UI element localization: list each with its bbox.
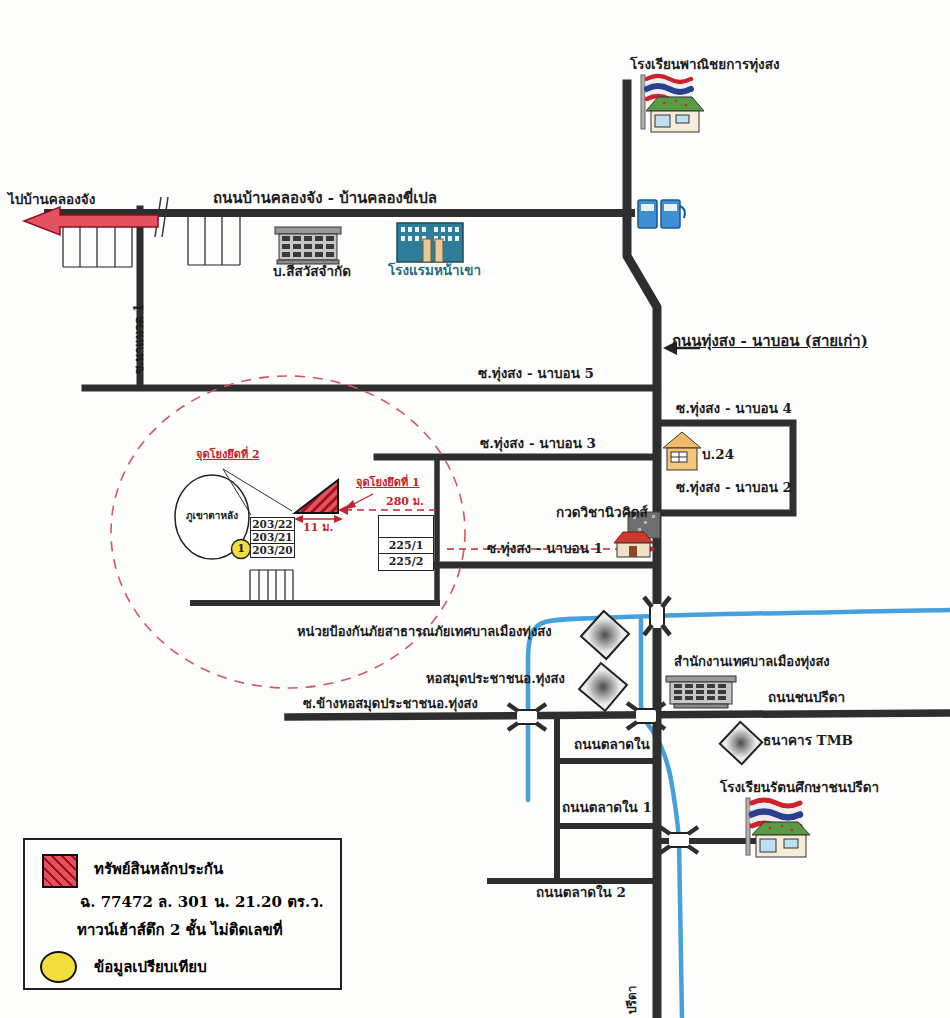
commercial-school-icon	[641, 75, 704, 132]
label-talat-nai-road: ถนนตลาดใน	[574, 737, 650, 752]
gas-station-icon	[638, 200, 685, 228]
label-fire-prevention-unit: หน่วยป้องกันภัยสาธารณภัยเทศบาลเมืองทุ่งส…	[297, 625, 552, 639]
label-municipality-office: สำนักงานเทศบาลเมืองทุ่งสง	[674, 655, 830, 669]
label-soi3: ซ.ทุ่งสง - นาบอน 3	[480, 436, 596, 451]
legend-comparison-label: ข้อมูลเปรียบเทียบ	[94, 955, 207, 979]
label-anchor-point-2: จุดโยงยึดที่ 2	[196, 449, 260, 461]
label-to-ban-khlong-chang: ไปบ้านคลองจัง	[8, 192, 95, 207]
label-distance-280: 280 ม.	[386, 496, 424, 508]
label-rattana-school: โรงเรียนรัตนศึกษาชนปรีดา	[720, 780, 879, 795]
label-soi5: ซ.ทุ่งสง - นาบอน 5	[478, 366, 594, 381]
label-na-khao-hotel: โรงแรมหน้าเขา	[388, 263, 481, 278]
label-soi1: ซ.ทุ่งสง - นาบอน 1	[487, 541, 603, 556]
label-soi-vertical: ซ.นาแนวด 1	[133, 304, 147, 374]
label-house-24: บ.24	[702, 447, 734, 462]
label-distance-11: 11 ม.	[303, 522, 333, 534]
parcel-cell-203-20: 203/20	[250, 543, 295, 558]
tmb-bank-diamond-icon	[720, 722, 762, 764]
legend-building-info: ทาวน์เฮ้าส์ตึก 2 ชั้น ไม่ติดเลขที่	[77, 918, 283, 942]
label-soi4: ซ.ทุ่งสง - นาบอน 4	[676, 401, 792, 416]
label-commercial-school: โรงเรียนพาณิชยการทุ่งสง	[630, 57, 780, 72]
label-newkids-tutor: กวดวิชานิวคิดส์	[556, 505, 648, 520]
municipality-building-icon	[666, 676, 736, 708]
label-old-road: ถนนทุ่งสง - นาบอน (สายเก่า)	[672, 333, 868, 350]
label-chon-preeda-road: ถนนชนปรีดา	[768, 690, 845, 705]
house-24-icon	[663, 432, 701, 470]
library-diamond-icon	[579, 663, 627, 711]
label-bottom-road-vertical: ปรีดา	[626, 985, 640, 1014]
label-tmb-bank: ธนาคาร TMB	[763, 733, 853, 748]
hand-drawn-location-map: 203/22 203/21 203/20 225/1 225/2 1 โรงเร…	[0, 0, 950, 1018]
road-library-chonpreeda	[288, 713, 950, 717]
label-soi2: ซ.ทุ่งสง - นาบอน 2	[676, 480, 792, 495]
collateral-property-triangle	[295, 480, 338, 513]
parcel-cell-225-2: 225/2	[378, 553, 434, 571]
label-talat-nai-2-road: ถนนตลาดใน 2	[536, 885, 626, 900]
collateral-hatch-swatch	[42, 854, 78, 888]
label-library-side-soi: ซ.ข้างหอสมุดประชาชนอ.ทุ่งสง	[303, 697, 478, 711]
comparison-marker-number: 1	[232, 542, 250, 555]
legend-deed-info: ฉ. 77472 ล. 301 น. 21.20 ตร.ว.	[80, 890, 324, 914]
parcel-cell-empty	[378, 515, 434, 539]
legend-collateral-label: ทรัพย์สินหลักประกัน	[94, 857, 223, 881]
label-khlong-chang-road: ถนนบ้านคลองจัง - บ้านคลองขี่เปล	[213, 190, 437, 207]
label-sisawat-company: บ.สีสวัสจำกัด	[273, 264, 351, 279]
label-anchor-point-1: จุดโยงยึดที่ 1	[356, 477, 420, 489]
label-public-library: หอสมุดประชาชนอ.ทุ่งสง	[426, 672, 565, 686]
hotel-building-icon	[397, 223, 463, 262]
rattana-school-icon	[746, 798, 810, 857]
comparison-marker-swatch	[40, 951, 77, 983]
company-building-icon	[275, 227, 341, 264]
label-mountain: ภูเขาตาหลัง	[181, 510, 243, 521]
legend-box: ทรัพย์สินหลักประกัน ฉ. 77472 ล. 301 น. 2…	[23, 838, 342, 990]
label-talat-nai-1-road: ถนนตลาดใน 1	[562, 800, 652, 815]
